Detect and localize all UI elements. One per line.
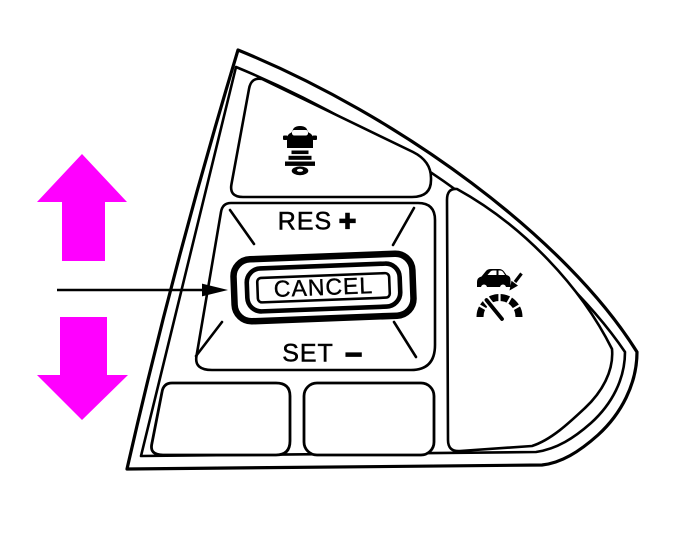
- cruise-control-diagram: RES + SET − CANCEL: [0, 0, 686, 556]
- steering-wheel-panel: RES + SET − CANCEL: [127, 50, 637, 469]
- cancel-label: CANCEL: [273, 272, 373, 302]
- pointer-arrow: [57, 284, 228, 297]
- cancel-button: CANCEL: [233, 253, 414, 322]
- down-arrow: [37, 317, 128, 420]
- res-plus-button: RES +: [278, 205, 356, 238]
- res-label: RES: [278, 208, 332, 236]
- plus-symbol: +: [339, 205, 357, 238]
- minus-symbol: −: [345, 339, 363, 372]
- lower-right-button: [304, 383, 434, 455]
- up-arrow: [37, 154, 127, 261]
- set-minus-button: SET −: [282, 339, 362, 372]
- lower-left-button: [151, 383, 290, 455]
- set-label: SET: [282, 340, 334, 368]
- diagram-canvas: RES + SET − CANCEL: [0, 0, 686, 556]
